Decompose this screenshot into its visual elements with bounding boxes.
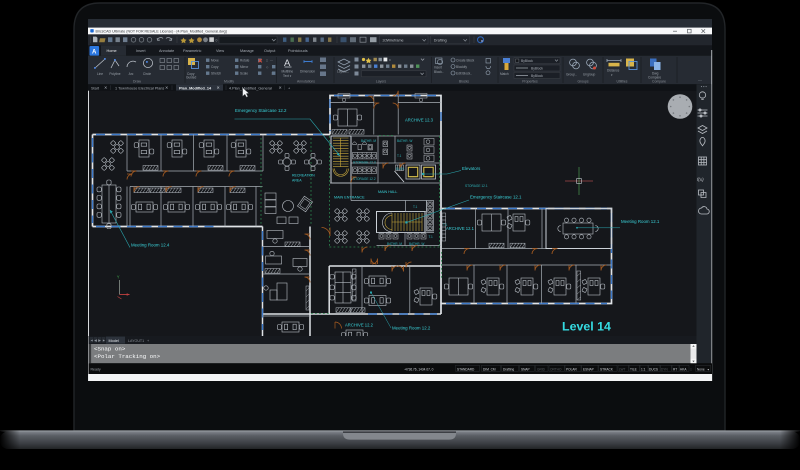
svg-text:Draw: Draw: [133, 80, 141, 84]
svg-text:ByBlock: ByBlock: [521, 59, 533, 63]
svg-text:Elevators: Elevators: [462, 166, 481, 171]
svg-text:Move: Move: [211, 59, 219, 63]
svg-text:4.Plan_Modified_General: 4.Plan_Modified_General: [229, 86, 272, 90]
svg-text:ByBlock: ByBlock: [531, 74, 543, 78]
svg-text:Home: Home: [107, 49, 117, 53]
svg-text:ARCHIVE 12.2: ARCHIVE 12.2: [345, 323, 374, 328]
svg-text:Utilities: Utilities: [617, 80, 628, 84]
svg-text:T.1: T.1: [443, 223, 447, 227]
svg-text:Drafting: Drafting: [434, 39, 447, 43]
svg-text:⋯: ⋯: [270, 59, 273, 63]
svg-text:1 Townhouse Electrical Plans: 1 Townhouse Electrical Plans: [115, 86, 164, 90]
svg-text:Meeting Room 12.1: Meeting Room 12.1: [621, 219, 660, 224]
svg-text:Blockify: Blockify: [456, 65, 467, 69]
svg-text:ORTHO: ORTHO: [550, 367, 562, 371]
svg-text:<Snap on>: <Snap on>: [94, 346, 126, 353]
svg-text:Line: Line: [97, 72, 103, 76]
svg-text:Y: Y: [117, 275, 120, 280]
svg-text:Match: Match: [500, 72, 509, 76]
svg-text:□: □: [690, 367, 692, 371]
svg-text:LAYOUT1: LAYOUT1: [128, 339, 144, 343]
svg-text:ARCHIVE 12.1: ARCHIVE 12.1: [446, 226, 475, 231]
svg-text:Block..: Block..: [434, 70, 444, 74]
svg-text:Create Block: Create Block: [456, 59, 475, 63]
svg-text:Level 14: Level 14: [562, 320, 611, 334]
svg-text:Group..: Group..: [566, 73, 577, 77]
svg-text:Meeting Room 12.4: Meeting Room 12.4: [131, 243, 170, 248]
svg-text:BATHR. W: BATHR. W: [397, 139, 412, 143]
svg-text:POLAR: POLAR: [566, 367, 578, 371]
svg-text:Annotations: Annotations: [297, 80, 315, 84]
svg-text:✕: ✕: [217, 86, 220, 90]
svg-text:—: —: [698, 77, 702, 82]
svg-text:-4736.76, 1434.07, 0: -4736.76, 1434.07, 0: [404, 367, 434, 371]
svg-text:Dimension: Dimension: [300, 69, 315, 73]
svg-text:BATHR. M: BATHR. M: [387, 242, 402, 246]
svg-text:STRACK: STRACK: [600, 367, 614, 371]
svg-text:Meeting Room 12.2: Meeting Room 12.2: [392, 326, 431, 331]
svg-text:Blocks: Blocks: [459, 80, 469, 84]
svg-text:ELEV.: ELEV.: [396, 167, 405, 171]
svg-text:Insert: Insert: [434, 66, 442, 70]
svg-text:1:1: 1:1: [641, 367, 646, 371]
svg-text:Emergency Staircase 12.2: Emergency Staircase 12.2: [235, 108, 287, 113]
svg-text:0: 0: [216, 39, 218, 43]
svg-text:Modify: Modify: [224, 80, 234, 84]
svg-text:✕: ✕: [279, 86, 282, 90]
svg-text:TILE: TILE: [630, 367, 637, 371]
svg-text:Ready: Ready: [91, 367, 101, 371]
svg-text:Insert: Insert: [136, 49, 146, 53]
svg-text:Layers: Layers: [376, 80, 386, 84]
svg-text:View: View: [216, 49, 224, 53]
svg-text:STANDARD: STANDARD: [457, 367, 475, 371]
svg-text:Scale: Scale: [240, 72, 248, 76]
svg-text:►: ►: [102, 339, 105, 343]
svg-text:T.1: T.1: [413, 205, 417, 209]
svg-text:DIM_CM: DIM_CM: [483, 367, 496, 371]
svg-text:DYN: DYN: [661, 367, 668, 371]
svg-text:◀: ◀: [94, 339, 97, 343]
svg-text:T.1: T.1: [397, 154, 401, 158]
svg-text:Multiline: Multiline: [282, 69, 294, 73]
svg-text:ARCHIVE 12.3: ARCHIVE 12.3: [405, 118, 434, 123]
svg-text:HKA: HKA: [680, 367, 687, 371]
svg-text:Polyline: Polyline: [109, 72, 120, 76]
svg-text:Annotate: Annotate: [159, 49, 174, 53]
svg-text:✕: ✕: [104, 86, 107, 90]
svg-text:Arc: Arc: [129, 72, 134, 76]
svg-text:✕: ✕: [165, 86, 168, 90]
svg-text:RT: RT: [673, 367, 677, 371]
svg-text:▶: ▶: [98, 339, 101, 343]
svg-text:Copy: Copy: [211, 65, 219, 69]
svg-text:RECREATION: RECREATION: [292, 174, 315, 178]
svg-text:Mirror: Mirror: [240, 65, 249, 69]
svg-text:Start: Start: [91, 86, 100, 90]
svg-text:Text ▾: Text ▾: [283, 74, 292, 78]
svg-text:STORAGE 12.1: STORAGE 12.1: [465, 184, 488, 188]
svg-text:Compare: Compare: [652, 80, 666, 84]
svg-text:2dWireframe: 2dWireframe: [383, 39, 404, 43]
svg-text:A: A: [92, 49, 97, 55]
svg-text:GRID: GRID: [537, 367, 546, 371]
svg-text:AREA: AREA: [292, 179, 302, 183]
svg-text:Parametric: Parametric: [183, 49, 201, 53]
svg-text:ByBlock: ByBlock: [531, 67, 543, 71]
svg-text:Manage: Manage: [240, 49, 254, 53]
svg-text:BATHR. W: BATHR. W: [409, 242, 424, 246]
svg-text:DUCS: DUCS: [649, 367, 658, 371]
svg-text:Edit Block..: Edit Block..: [456, 72, 472, 76]
svg-text:T.1: T.1: [429, 235, 433, 239]
svg-text:◄: ◄: [90, 339, 93, 343]
svg-text:MAIN HALL: MAIN HALL: [378, 190, 397, 194]
svg-text:SNAP: SNAP: [521, 367, 530, 371]
svg-text:BATHR. M: BATHR. M: [361, 139, 376, 143]
svg-text:BricsCAD Ultimate (NOT FOR RES: BricsCAD Ultimate (NOT FOR RESALE Licens…: [96, 30, 227, 34]
svg-text:<Polar Tracking on>: <Polar Tracking on>: [94, 353, 161, 360]
svg-text:Stretch: Stretch: [211, 72, 221, 76]
svg-text:Ungroup: Ungroup: [583, 73, 595, 77]
svg-text:□: □: [266, 59, 268, 63]
svg-text:Emergency Staircase 12.1: Emergency Staircase 12.1: [470, 195, 522, 200]
svg-text:f(x): f(x): [697, 177, 704, 182]
svg-text:ESNAP: ESNAP: [583, 367, 594, 371]
svg-text:Plan_Modified_14: Plan_Modified_14: [179, 86, 212, 90]
svg-text:MAIN ENTRANCE: MAIN ENTRANCE: [334, 196, 365, 200]
svg-text:Layers...: Layers...: [337, 69, 349, 73]
svg-text:Output: Output: [264, 49, 276, 53]
svg-text:Compare: Compare: [648, 75, 661, 79]
svg-text:Distance: Distance: [607, 69, 620, 73]
svg-text:STORAGE 12.2: STORAGE 12.2: [353, 177, 376, 181]
svg-text:Rotate: Rotate: [240, 59, 250, 63]
svg-text:None: None: [697, 367, 705, 371]
svg-text:Drafting: Drafting: [503, 367, 514, 371]
svg-text:Circle: Circle: [143, 72, 151, 76]
svg-text:Properties: Properties: [522, 80, 538, 84]
svg-text:STORAGE 12.3: STORAGE 12.3: [353, 161, 376, 165]
svg-text:Model: Model: [109, 339, 119, 343]
svg-text:Groups: Groups: [577, 80, 588, 84]
svg-text:⋮: ⋮: [270, 72, 273, 76]
svg-text:LWT: LWT: [619, 367, 626, 371]
svg-text:Guided: Guided: [186, 76, 197, 80]
svg-text:Pointclouds: Pointclouds: [288, 49, 308, 53]
